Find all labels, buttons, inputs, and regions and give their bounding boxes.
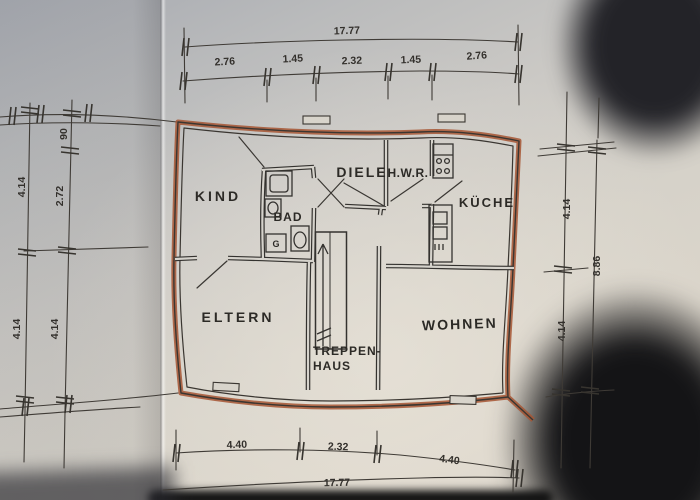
dim-bottom-overall: 17.77 (324, 477, 351, 489)
stove (433, 144, 453, 178)
room-label-bad: BAD (274, 210, 303, 224)
room-label-wohnen: WOHNEN (422, 315, 498, 334)
room-label-treppenhaus-2: HAUS (313, 359, 351, 373)
photographed-floor-plan: KIND BAD G DIELE H.W.R. KÜCHE ELTERN TRE… (0, 0, 700, 500)
dim-top-seg-1: 2.76 (214, 55, 235, 68)
dim-bottom-seg-3: 4.40 (438, 453, 460, 468)
room-label-kind: KIND (195, 188, 241, 204)
window-marker (450, 396, 476, 405)
dim-right-inner-1: 4.14 (561, 199, 573, 220)
dim-top-seg-5: 2.76 (466, 49, 487, 62)
dim-right-outer-overall: 8.86 (591, 256, 603, 277)
bathtub (266, 171, 292, 196)
room-label-treppenhaus-1: TREPPEN- (313, 344, 382, 358)
dim-right-inner-2: 4.14 (556, 321, 568, 342)
dim-bottom-seg-2: 2.32 (328, 441, 349, 454)
room-label-diele: DIELE (336, 164, 387, 180)
dim-left-outer-1: 4.14 (16, 177, 28, 198)
room-label-kueche: KÜCHE (459, 195, 515, 210)
dim-left-inner-2: 2.72 (54, 186, 66, 207)
dim-top-seg-2: 1.45 (282, 52, 303, 65)
room-label-eltern: ELTERN (202, 309, 275, 325)
dim-top-seg-4: 1.45 (400, 54, 421, 67)
dim-bottom-seg-1: 4.40 (226, 439, 247, 452)
staircase (316, 232, 347, 349)
window-marker (438, 114, 465, 122)
dim-left-inner-1: 90 (58, 128, 70, 140)
dim-top-overall: 17.77 (334, 25, 361, 38)
appliance-label-g: G (272, 239, 279, 249)
toilet (291, 226, 309, 251)
floor-plan-drawing: KIND BAD G DIELE H.W.R. KÜCHE ELTERN TRE… (0, 0, 700, 500)
dim-left-outer-2: 4.14 (11, 319, 23, 340)
dim-top-seg-3: 2.32 (341, 55, 362, 68)
stair-direction-arrow (318, 244, 328, 346)
window-marker (303, 116, 330, 124)
room-label-hwr: H.W.R. (388, 166, 429, 180)
dim-left-inner-3: 4.14 (49, 319, 61, 340)
window-marker (213, 382, 239, 391)
